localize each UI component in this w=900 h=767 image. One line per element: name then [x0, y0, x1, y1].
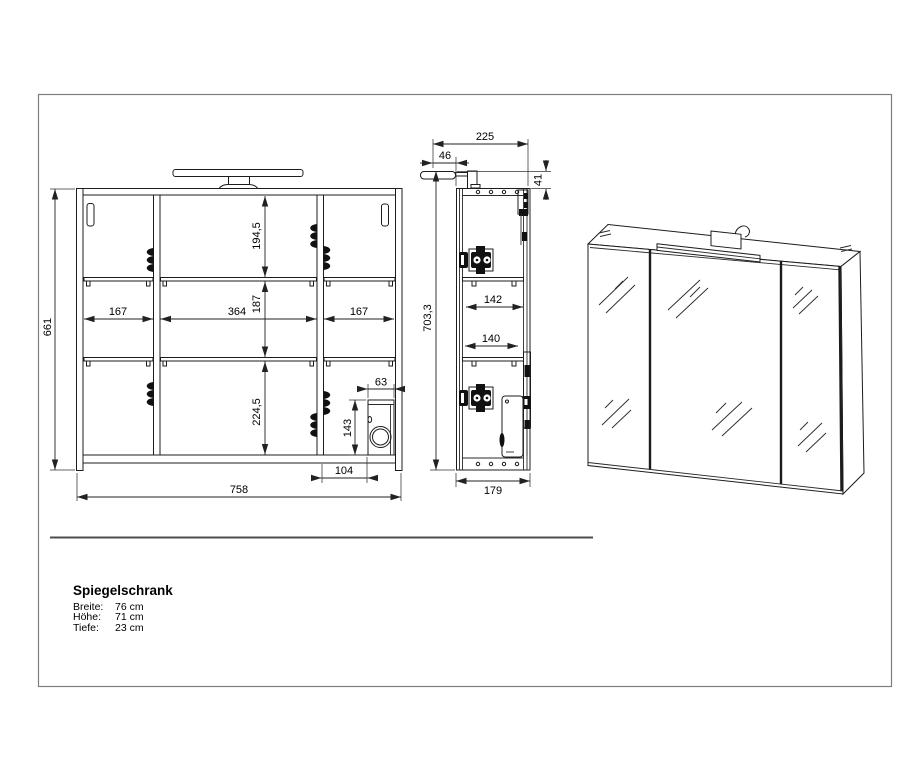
dim-col-left: 167 [109, 306, 127, 318]
left-post [77, 189, 84, 471]
technical-drawing: 661 758 167 364 167 194,5 187 224,5 63 [0, 0, 900, 767]
dim-lamp-height: 41 [533, 174, 545, 186]
cutout-box [368, 400, 394, 455]
iso-view [588, 225, 864, 495]
dim-cutout-width: 63 [375, 377, 387, 389]
spec-value: 23 cm [115, 623, 144, 633]
cutout-box-side [500, 396, 524, 457]
cable-hole [370, 427, 391, 448]
dim-row-middle: 187 [251, 295, 263, 313]
side-dimensions: 225 46 41 703,3 142 140 179 [420, 131, 551, 497]
front-dimensions: 661 758 167 364 167 194,5 187 224,5 63 [42, 189, 405, 501]
spec-row-depth: Tiefe: 23 cm [73, 623, 173, 633]
dim-row-top: 194,5 [251, 222, 263, 250]
dim-lamp-overhang: 46 [439, 150, 451, 162]
vent-slot-left [87, 204, 94, 227]
dim-shelf-depth-lower: 140 [482, 333, 500, 345]
bottom-rail [83, 455, 396, 463]
lamp-side [421, 171, 481, 189]
dim-overall-width: 758 [230, 484, 248, 496]
dim-overall-depth: 225 [476, 131, 494, 143]
side-view: 225 46 41 703,3 142 140 179 [420, 131, 551, 497]
vent-slot-right [382, 204, 389, 226]
dim-side-overall-height: 703,3 [422, 304, 434, 332]
top-rail [83, 189, 396, 196]
dim-col-right: 167 [350, 306, 368, 318]
lamp-front [173, 170, 303, 189]
dim-col-center: 364 [228, 306, 246, 318]
dim-overall-height: 661 [42, 318, 54, 336]
dim-cutout-offset: 104 [335, 465, 353, 477]
dim-cutout-height: 143 [342, 419, 354, 437]
hinge-side-lower [459, 384, 493, 412]
divider-right [317, 195, 324, 455]
right-post [396, 189, 403, 471]
hinge-side-upper [459, 246, 493, 274]
iso-right-face [841, 252, 864, 495]
product-specs: Spiegelschrank Breite: 76 cm Höhe: 71 cm… [73, 583, 173, 633]
side-shelf-upper [463, 278, 524, 282]
iso-front-face [588, 244, 843, 494]
shelves-front [84, 278, 395, 367]
screw-holes [476, 190, 518, 465]
dim-body-depth: 179 [484, 485, 502, 497]
product-title: Spiegelschrank [73, 583, 173, 598]
side-shelf-lower [463, 358, 524, 362]
divider-left [154, 195, 161, 455]
hinges-front [147, 224, 331, 437]
spec-label: Tiefe: [73, 623, 115, 633]
side-carcass [457, 189, 531, 471]
dim-shelf-depth-upper: 142 [484, 294, 502, 306]
dim-row-bottom: 224,5 [251, 398, 263, 426]
wall-bracket-upper [518, 190, 528, 245]
front-view: 661 758 167 364 167 194,5 187 224,5 63 [42, 170, 405, 502]
